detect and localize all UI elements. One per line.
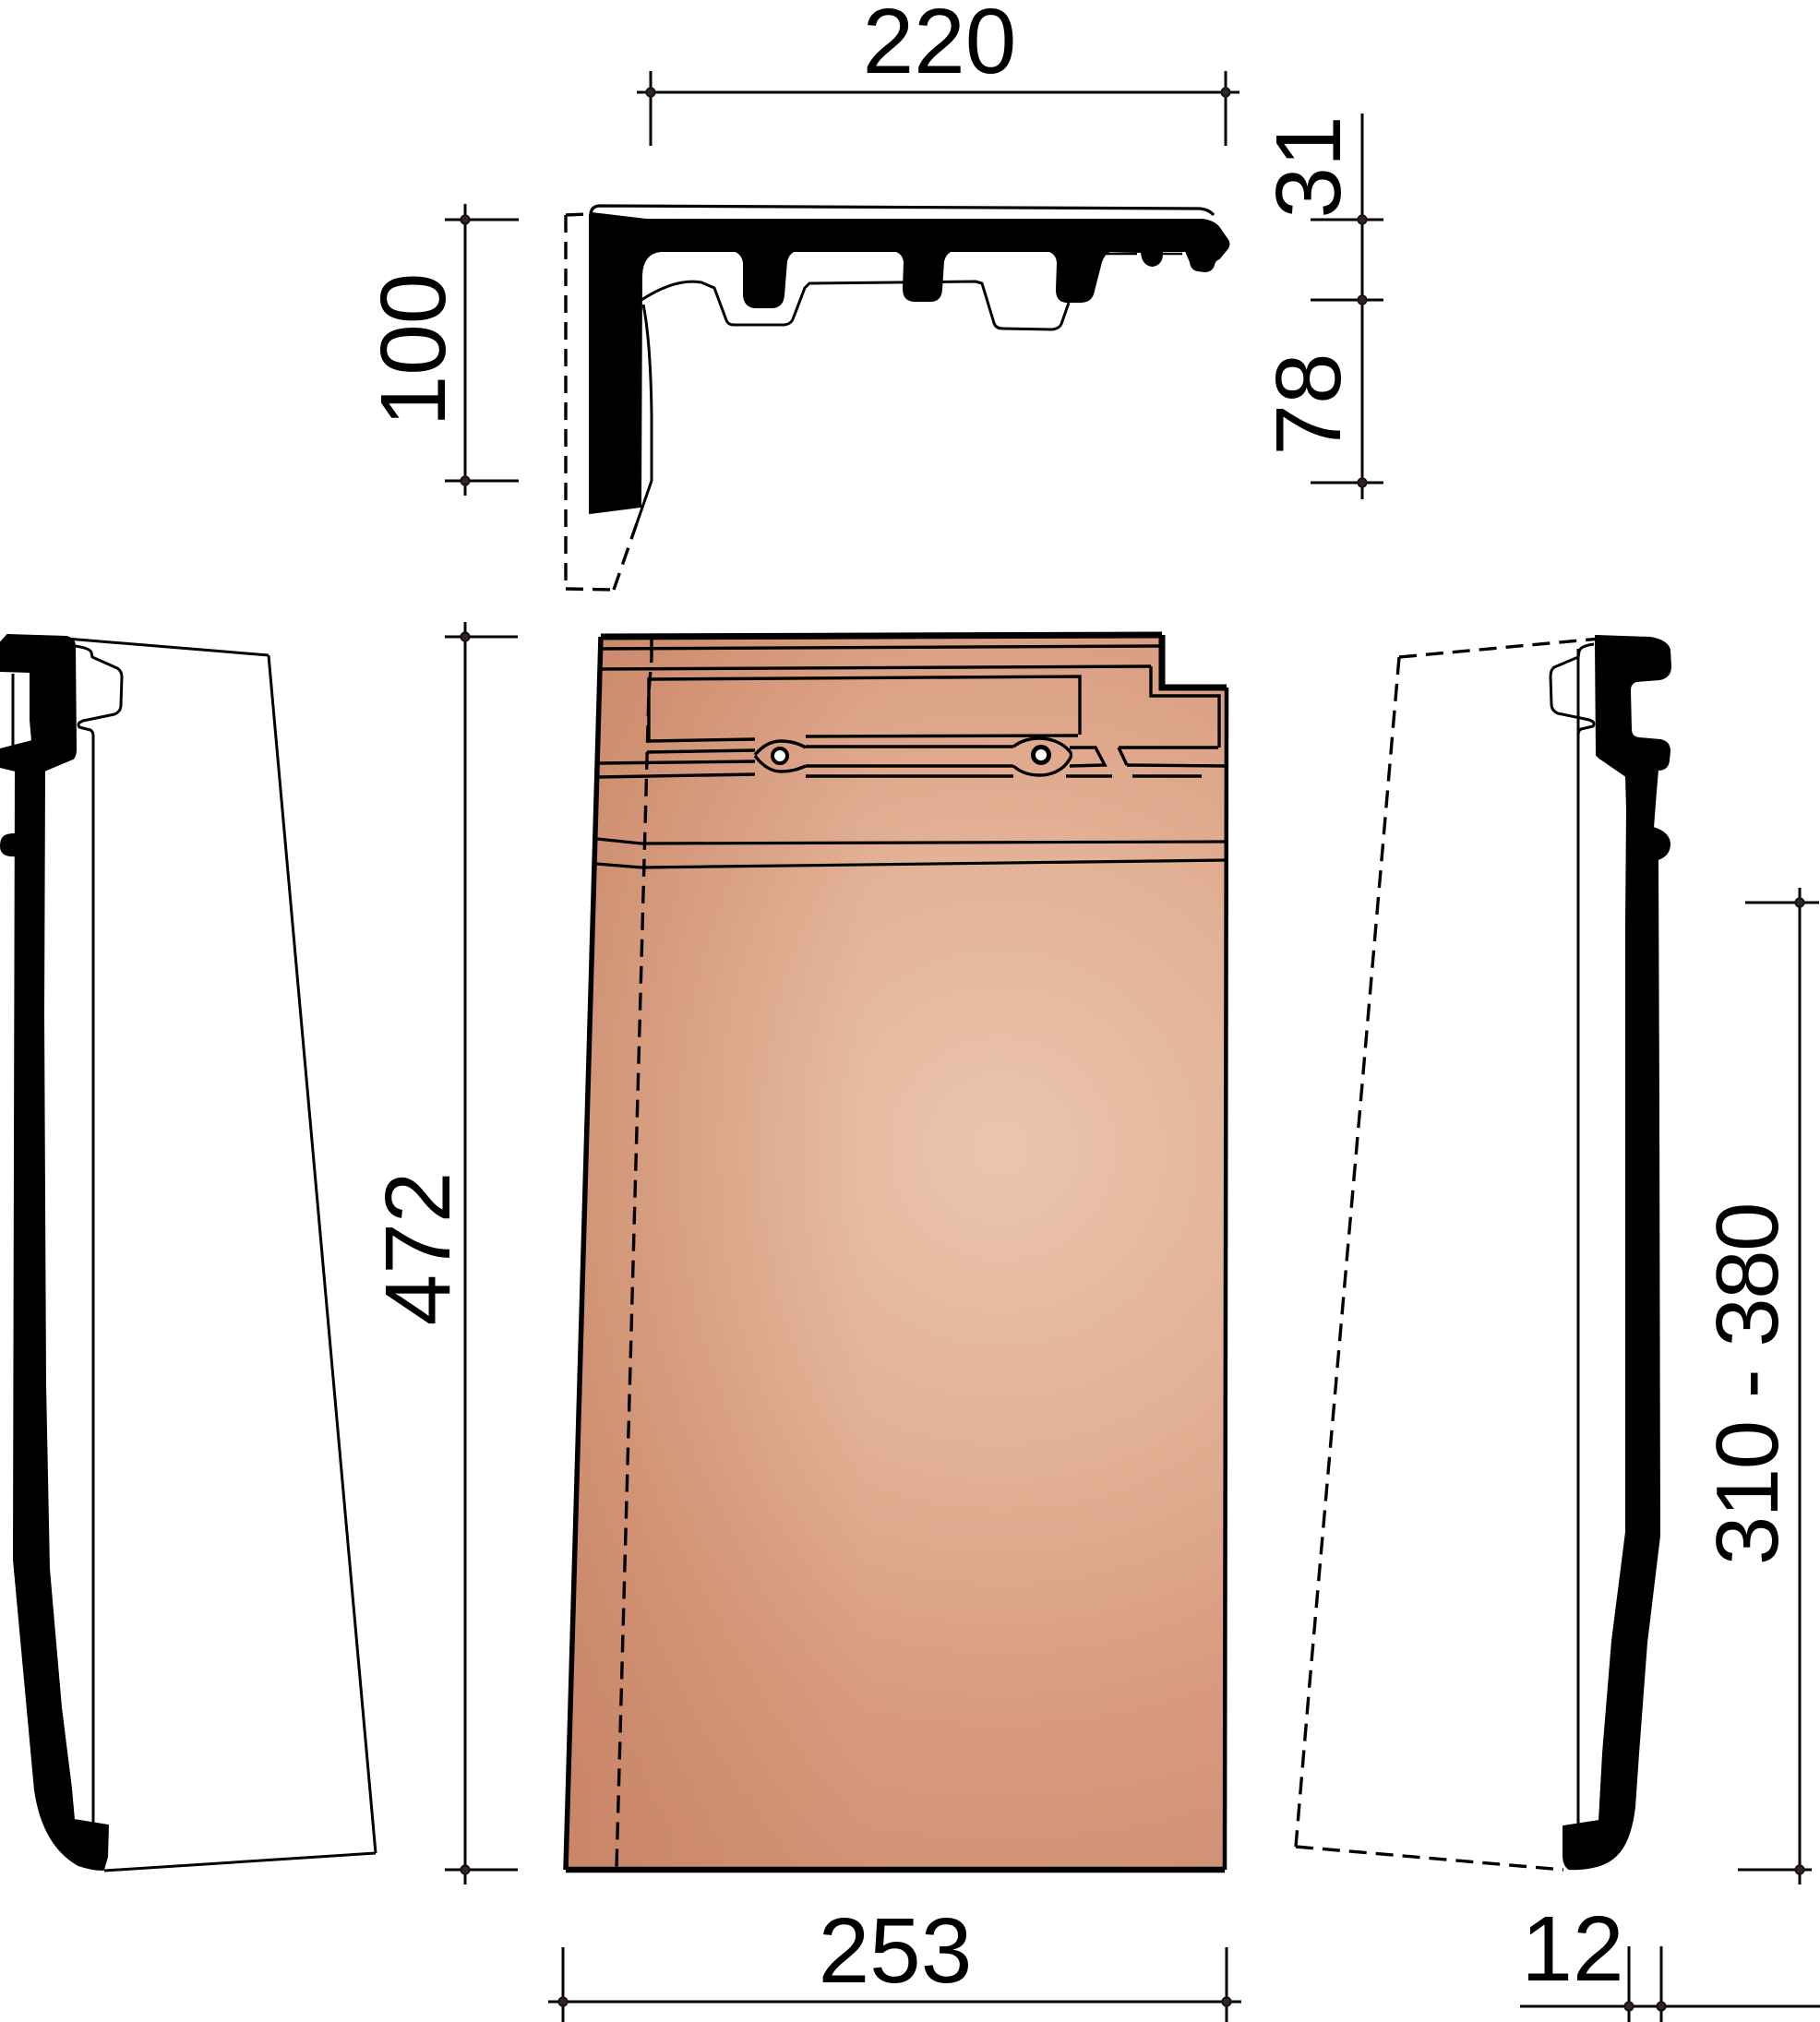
svg-text:310 - 380: 310 - 380 (1698, 1203, 1797, 1565)
svg-text:472: 472 (366, 1172, 470, 1326)
svg-text:100: 100 (362, 273, 465, 427)
svg-text:253: 253 (819, 1899, 973, 2003)
svg-text:78: 78 (1257, 353, 1360, 455)
svg-text:31: 31 (1257, 115, 1360, 218)
svg-text:12: 12 (1521, 1897, 1623, 2001)
svg-text:220: 220 (863, 0, 1017, 93)
